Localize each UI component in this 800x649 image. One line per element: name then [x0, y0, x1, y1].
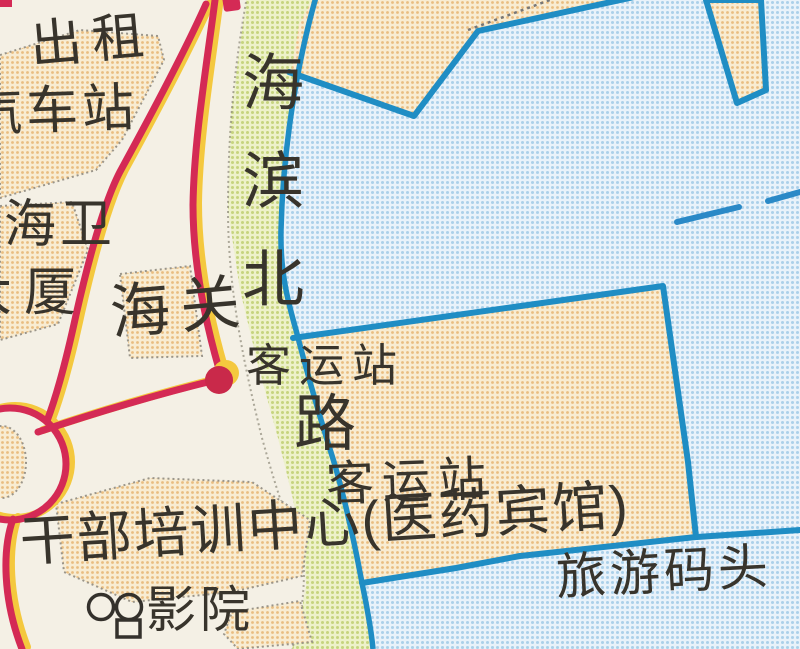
label-coastal-road-vertical: 海滨北 — [234, 50, 299, 344]
label-tourist-wharf: 旅游码头 — [555, 540, 773, 604]
label-haiwei-building-line1: 海卫 — [4, 198, 116, 253]
roundabout-island — [0, 426, 26, 498]
station-marker-dot — [205, 366, 233, 394]
clipped-red-symbol-top — [222, 0, 241, 12]
scanned-map-viewport: 出租 汽车站 海卫 大厦 海关 海滨北 路 客运站 客运站 干部培训中心(医药宾… — [0, 0, 800, 649]
label-customs: 海关 — [108, 270, 253, 345]
label-haiwei-building-line2: 大厦 — [0, 266, 88, 321]
label-coastal-road-tail: 路 — [294, 392, 356, 457]
clipped-red-symbol-corner — [0, 0, 12, 7]
label-taxi-station-line1: 出租 — [28, 9, 156, 74]
label-taxi-station-line2: 汽车站 — [0, 81, 139, 141]
label-cinema: 影院 — [146, 584, 254, 637]
label-passenger-station-marker: 客运站 — [246, 342, 405, 389]
